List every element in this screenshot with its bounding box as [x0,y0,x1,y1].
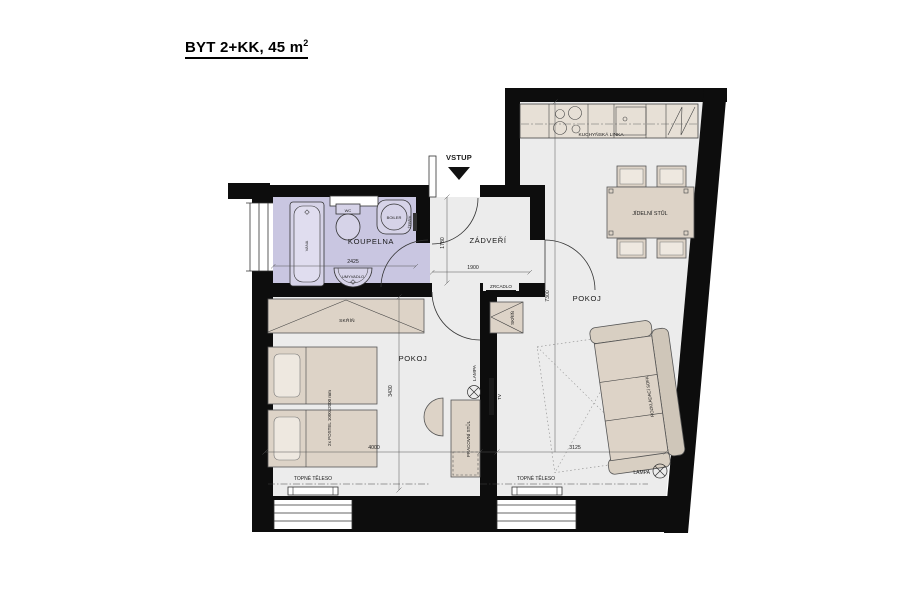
dining-chair [657,166,686,187]
dining-table: JÍDELNÍ STŮL [607,187,694,238]
bedroom-name: POKOJ [399,354,428,363]
floorplan-canvas: VSTUP VANA WC BOILER [0,0,900,600]
toilet-label: WC [345,208,352,213]
living-radiator-label: TOPNÉ TĚLESO [517,474,555,482]
boiler: BOILER [377,200,411,234]
living-hdim-label: 3125 [569,445,581,451]
boiler-label: BOILER [387,215,402,220]
beds-label: 2x POSTEL 1000x2000 mm [327,390,332,446]
living-vdim-label: 7300 [545,290,551,302]
kitchen-label: KUCHYŇSKÁ LINKA [578,131,624,138]
sink-label: UMYVADLO [342,274,364,279]
bed-1 [268,347,377,404]
plan-title: BYT 2+KK, 45 m2 [185,38,308,59]
bedroom-radiator-label: TOPNÉ TĚLESO [294,474,332,482]
wall-kitchen-top [505,88,727,102]
plan-title-sup: 2 [303,38,308,48]
wall-hall-right [530,197,545,240]
wall-kitchen-stub [505,88,520,197]
tv-label: TV [497,394,502,400]
living-wardrobe: SKŘÍŇ [490,302,523,333]
bathroom-door-threshold [416,243,430,283]
entrance-arrow-icon [448,167,470,180]
living-room-name: POKOJ [573,294,602,303]
entrance-door-leaf [429,156,436,197]
bedroom-lamp-label: LAMPA [472,364,478,381]
dining-chair [657,239,686,258]
desk: PRACOVNÍ STŮL [451,400,480,477]
hall-living-door-threshold [530,240,545,283]
wall-bathroom-right [416,197,430,243]
living-wardrobe-label: SKŘÍŇ [508,311,515,325]
dining-chair [617,239,646,258]
toilet: WC [336,204,360,240]
hallway-hdim-label: 1900 [467,265,479,271]
bathroom-window [246,203,273,271]
bathtub-label: VANA [304,240,309,251]
bedroom-wardrobe: SKŘÍŇ [268,299,424,333]
kitchen-unit: KUCHYŇSKÁ LINKA [520,104,698,138]
bathroom-name: KOUPELNA [348,237,394,246]
tv-icon [489,378,494,415]
bedroom-door-threshold [432,283,480,297]
entrance-label: VSTUP [446,153,472,162]
bedroom-window [274,500,352,529]
living-lamp-label: LAMPA [633,470,650,476]
hallway-name: ZÁDVEŘÍ [469,236,506,245]
bathroom-dim-label: 2425 [347,259,359,265]
mirror: ZRCADLO [483,280,519,291]
bedroom-vdim-label: 3430 [388,385,394,397]
towel-rail-label: ŽEBŘÍK [407,215,412,229]
living-room-window [497,500,576,529]
floorplan-page: BYT 2+KK, 45 m2 [0,0,900,600]
bathtub: VANA [290,202,324,286]
wall-bathroom-top [265,185,432,197]
bedroom-hdim-label: 4000 [368,445,380,451]
hallway-vdim-label: 1780 [440,237,446,249]
wall-bath-bedroom-divider [252,283,432,297]
bed-2 [268,410,377,467]
dining-table-label: JÍDELNÍ STŮL [632,210,667,217]
dining-chair [617,166,646,187]
desk-label: PRACOVNÍ STŮL [465,420,471,457]
plan-title-text: BYT 2+KK, 45 m [185,39,303,56]
mirror-label: ZRCADLO [490,284,512,289]
